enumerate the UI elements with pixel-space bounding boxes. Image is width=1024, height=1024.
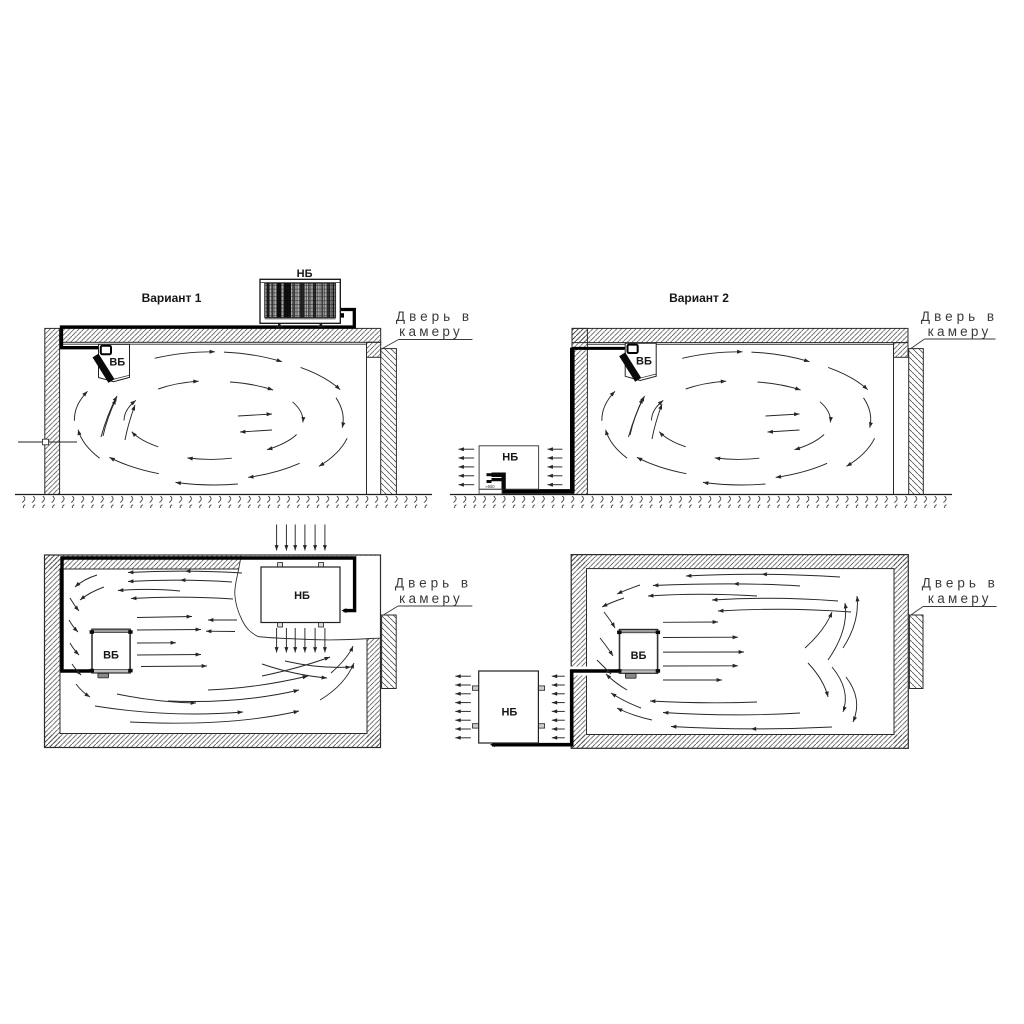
svg-text:ВБ: ВБ <box>109 357 125 369</box>
svg-text:камеру: камеру <box>928 324 992 339</box>
svg-text:Дверь в: Дверь в <box>921 309 998 324</box>
svg-text:НБ: НБ <box>294 590 310 602</box>
svg-text:Дверь в: Дверь в <box>922 576 999 591</box>
svg-text:Вариант 1: Вариант 1 <box>142 291 202 305</box>
svg-text:≈650: ≈650 <box>485 484 495 489</box>
svg-text:НБ: НБ <box>501 707 517 719</box>
svg-text:ВБ: ВБ <box>103 650 119 662</box>
svg-text:камеру: камеру <box>399 324 463 339</box>
svg-text:НБ: НБ <box>297 268 313 280</box>
svg-text:НБ: НБ <box>502 452 518 464</box>
svg-text:Дверь в: Дверь в <box>396 309 473 324</box>
svg-text:камеру: камеру <box>928 591 992 606</box>
svg-text:Вариант 2: Вариант 2 <box>669 291 729 305</box>
svg-text:Дверь в: Дверь в <box>395 576 472 591</box>
svg-text:камеру: камеру <box>399 591 463 606</box>
